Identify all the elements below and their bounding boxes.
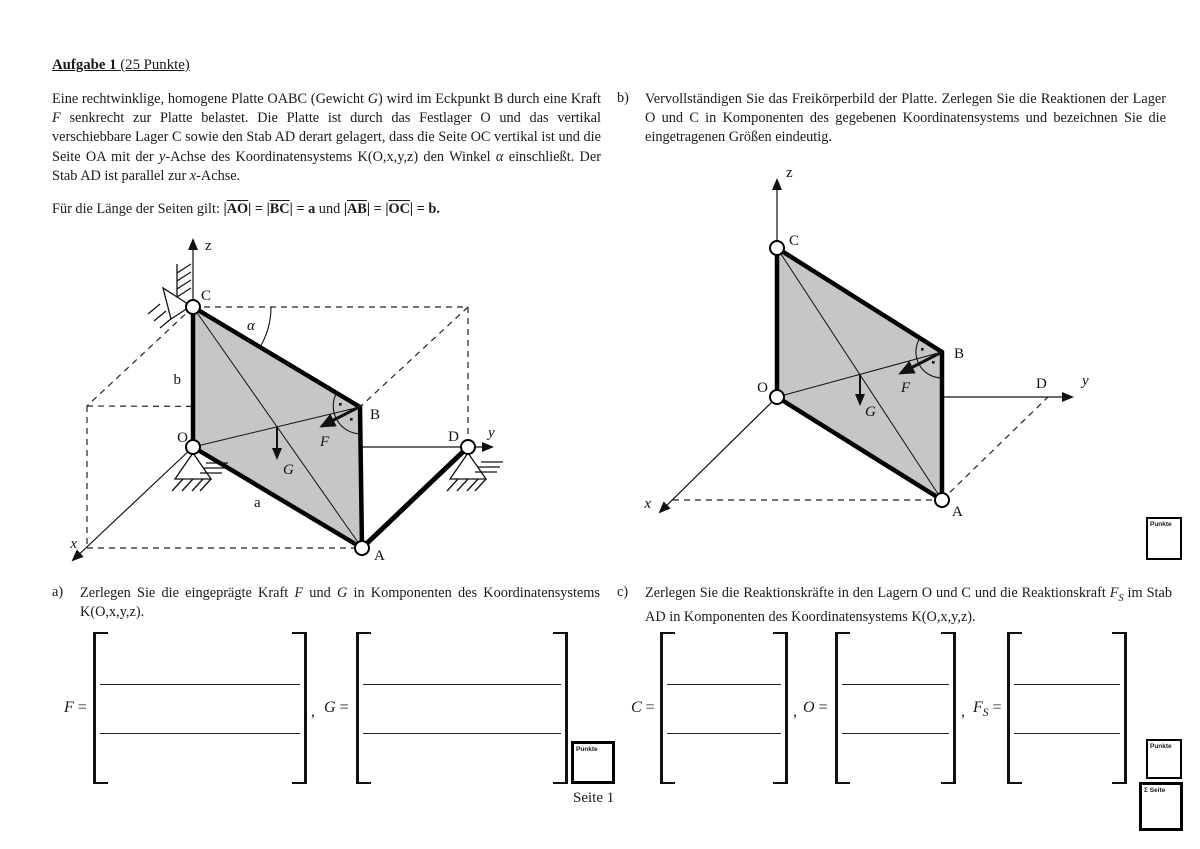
matrix-O-label: O = xyxy=(803,699,828,717)
bracket-left xyxy=(660,632,675,784)
label-D: D xyxy=(1036,376,1047,392)
label-x: x xyxy=(643,496,651,512)
label-x: x xyxy=(69,536,77,552)
matrix-G[interactable] xyxy=(356,632,568,784)
joint-D xyxy=(461,440,475,454)
label-C: C xyxy=(201,288,211,304)
task-a-text: Zerlegen Sie die eingeprägte Kraft F und… xyxy=(80,584,600,622)
separator-comma: , xyxy=(793,703,797,721)
joint-O xyxy=(770,390,784,404)
bracket-right xyxy=(941,632,956,784)
label-B: B xyxy=(370,407,380,423)
task-c-label: c) xyxy=(617,584,628,601)
label-D: D xyxy=(448,429,459,445)
matrix-C[interactable] xyxy=(660,632,788,784)
task-a-label: a) xyxy=(52,584,63,601)
label-z: z xyxy=(786,165,793,181)
joint-A xyxy=(355,541,369,555)
label-O: O xyxy=(177,430,188,446)
task-b-text: Vervollständigen Sie das Freikörperbild … xyxy=(645,90,1166,148)
answer-line[interactable] xyxy=(1014,684,1120,685)
points-box-label: Punkte xyxy=(1150,521,1180,528)
label-b: b xyxy=(174,372,182,388)
label-O: O xyxy=(757,380,768,396)
label-G: G xyxy=(283,462,294,478)
answer-line[interactable] xyxy=(100,684,300,685)
answer-line[interactable] xyxy=(842,684,949,685)
label-z: z xyxy=(205,238,212,254)
label-alpha: α xyxy=(247,318,256,334)
exercise-heading: Aufgabe 1 (25 Punkte) xyxy=(52,57,190,74)
joint-C xyxy=(186,300,200,314)
matrix-F[interactable] xyxy=(93,632,307,784)
points-box-label: Punkte xyxy=(1150,743,1180,750)
answer-line[interactable] xyxy=(1014,733,1120,734)
label-y: y xyxy=(1080,373,1089,389)
rod-AD xyxy=(362,447,468,548)
label-F: F xyxy=(900,380,911,396)
answer-line[interactable] xyxy=(100,733,300,734)
points-box-c[interactable]: Punkte xyxy=(1146,739,1182,779)
label-B: B xyxy=(954,346,964,362)
answer-line[interactable] xyxy=(363,684,561,685)
alpha-angle-arc xyxy=(260,307,271,347)
bracket-right xyxy=(773,632,788,784)
answer-line[interactable] xyxy=(667,684,781,685)
joint-O xyxy=(186,440,200,454)
exam-sheet-page: { "colors": { "plate_fill": "#c6c6c6", "… xyxy=(0,0,1200,849)
label-G: G xyxy=(865,404,876,420)
x-axis xyxy=(660,397,777,512)
matrix-Fs[interactable] xyxy=(1007,632,1127,784)
bracket-right xyxy=(1112,632,1127,784)
matrix-C-label: C = xyxy=(631,699,655,717)
matrix-F-label: F = xyxy=(64,699,87,717)
label-A: A xyxy=(952,504,963,520)
label-A: A xyxy=(374,548,385,564)
bracket-right xyxy=(553,632,568,784)
diagram-free-body: z C O B F G A D y x xyxy=(630,160,1100,535)
matrix-G-label: G = xyxy=(324,699,349,717)
label-y: y xyxy=(486,425,495,441)
intro-paragraph: Eine rechtwinklige, homogene Platte OABC… xyxy=(52,90,601,186)
page-number: Seite 1 xyxy=(573,790,614,807)
bracket-left xyxy=(835,632,850,784)
label-C: C xyxy=(789,233,799,249)
separator-comma: , xyxy=(961,703,965,721)
separator-comma: , xyxy=(311,703,315,721)
points-box-b[interactable]: Punkte xyxy=(1146,517,1182,560)
joint-A xyxy=(935,493,949,507)
label-F: F xyxy=(319,434,330,450)
sum-page-box-label: Σ Seite xyxy=(1144,787,1180,794)
label-a: a xyxy=(254,495,261,511)
answer-line[interactable] xyxy=(842,733,949,734)
bracket-right xyxy=(292,632,307,784)
answer-line[interactable] xyxy=(363,733,561,734)
diagram-plate-with-supports: z C α b O B F G a A D y x xyxy=(40,225,530,580)
points-box-label: Punkte xyxy=(576,746,612,753)
joint-C xyxy=(770,241,784,255)
bracket-left xyxy=(356,632,371,784)
sum-page-box[interactable]: Σ Seite xyxy=(1139,782,1183,831)
task-c-text: Zerlegen Sie die Reaktionskräfte in den … xyxy=(645,584,1172,627)
points-box-a[interactable]: Punkte xyxy=(571,741,615,784)
matrix-Fs-label: FS = xyxy=(973,699,1002,719)
bracket-left xyxy=(93,632,108,784)
bracket-left xyxy=(1007,632,1022,784)
task-b-label: b) xyxy=(617,90,629,107)
answer-line[interactable] xyxy=(667,733,781,734)
matrix-O[interactable] xyxy=(835,632,956,784)
side-lengths-line: Für die Länge der Seiten gilt: |AO| = |B… xyxy=(52,200,601,219)
x-axis xyxy=(73,447,193,560)
support-C xyxy=(148,264,191,328)
